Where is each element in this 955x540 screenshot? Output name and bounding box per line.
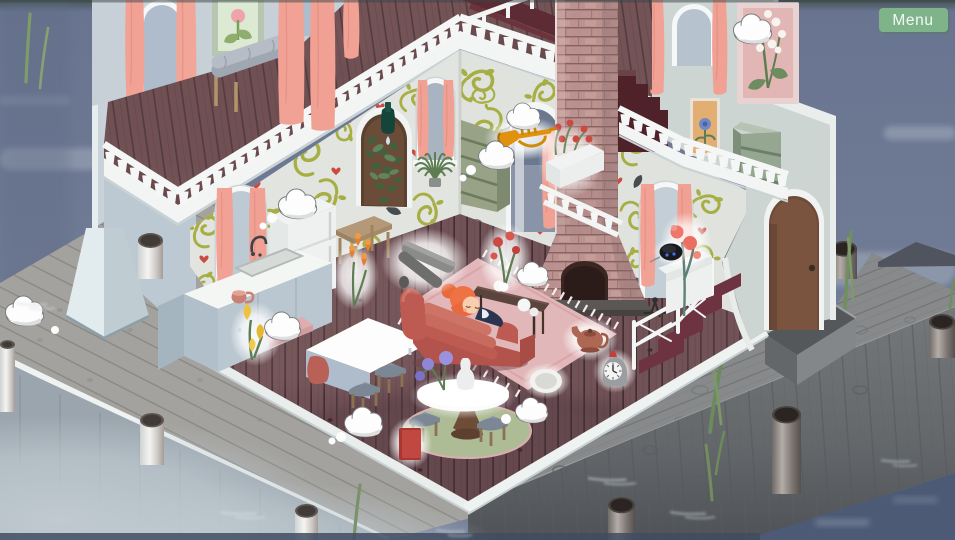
svg-text:Menu: Menu: [892, 12, 933, 29]
